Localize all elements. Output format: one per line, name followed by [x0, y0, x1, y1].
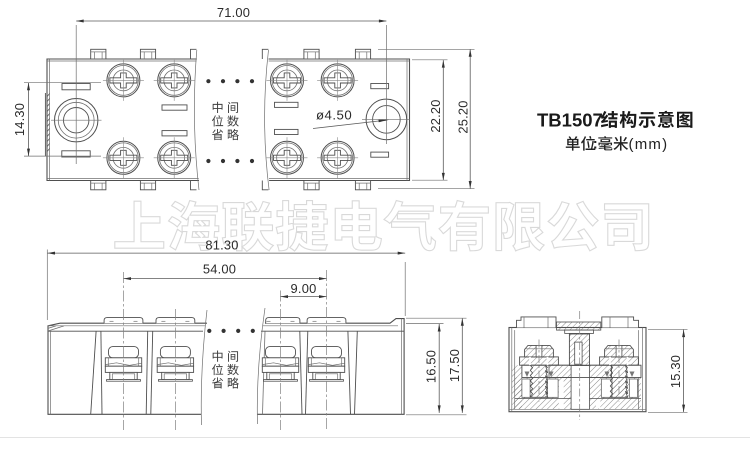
svg-text:81.30: 81.30: [205, 238, 238, 253]
svg-text:17.50: 17.50: [447, 349, 462, 382]
svg-text:25.20: 25.20: [456, 100, 471, 133]
svg-text:22.20: 22.20: [428, 99, 443, 132]
svg-text:TB1507: TB1507: [537, 109, 603, 130]
svg-text:9.00: 9.00: [291, 281, 317, 296]
svg-text:14.30: 14.30: [12, 103, 27, 136]
svg-text:54.00: 54.00: [203, 262, 236, 277]
svg-text:ø4.50: ø4.50: [316, 107, 352, 122]
svg-text::: :: [593, 135, 598, 152]
svg-text:71.00: 71.00: [217, 5, 250, 20]
svg-text:16.50: 16.50: [423, 350, 438, 383]
svg-text:15.30: 15.30: [668, 355, 683, 388]
svg-text:(mm): (mm): [629, 136, 669, 153]
